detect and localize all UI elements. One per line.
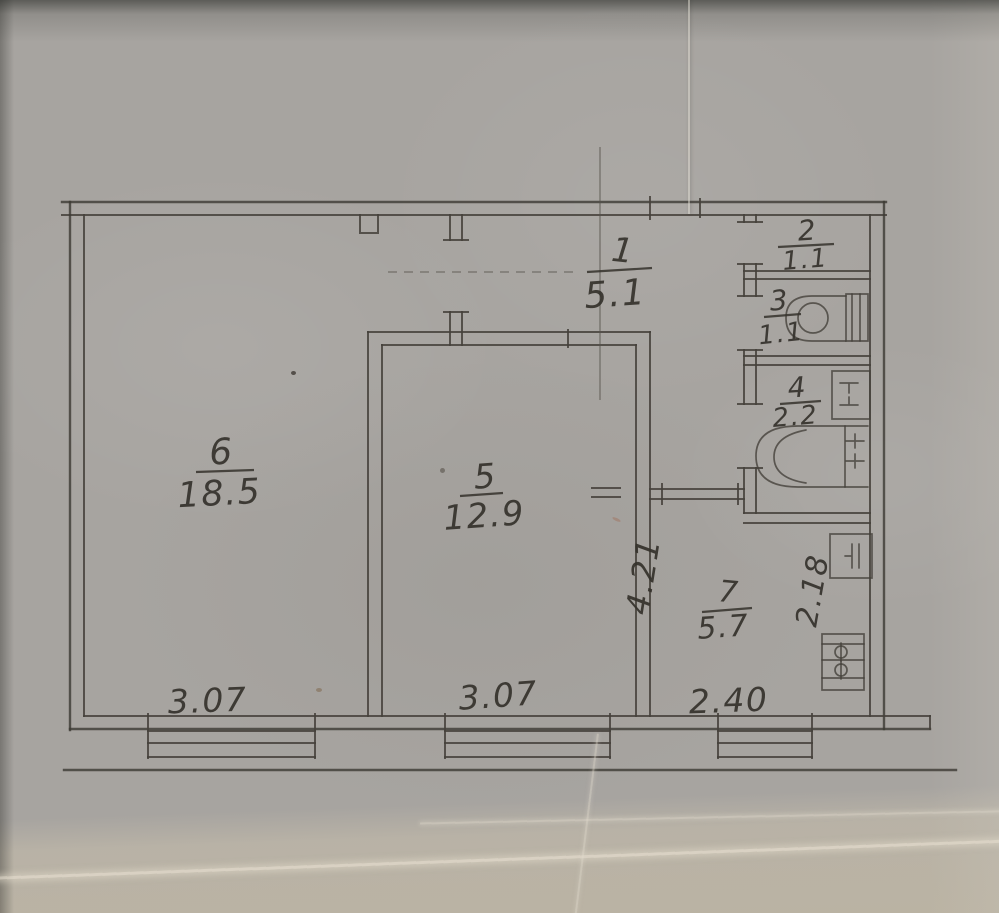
room-5-label: 5 12.9: [442, 456, 526, 539]
dimension-corridor-vertical: 4.21: [618, 535, 668, 617]
dimension-bottom-left: 3.07: [167, 680, 248, 722]
dimension-bottom-right: 2.40: [688, 680, 769, 722]
kitchen-sink-icon: [830, 534, 872, 578]
bathtub-icon: [756, 426, 868, 487]
top-wall-pilaster: [360, 215, 378, 233]
washbasin-icon: [832, 371, 870, 419]
wall-room3-room4: [744, 356, 870, 365]
room-2-area: 1.1: [781, 243, 829, 277]
wall-room6-room5: [368, 332, 382, 716]
room-7-label: 7 5.7: [696, 574, 752, 647]
stove-icon: [822, 634, 864, 690]
room-2-number: 2: [797, 213, 819, 247]
room-1-label: 1 5.1: [583, 230, 652, 317]
room-7-area: 5.7: [696, 608, 751, 647]
scanned-paper-page: 6 18.5 5 12.9 1 5.1 2 1.1 3 1.1 4 2.2: [0, 0, 999, 913]
wall-room5-top: [368, 330, 650, 347]
wall-hall-room6-with-door: [444, 215, 468, 345]
room-1-number: 1: [610, 230, 637, 272]
room-3-label: 3 1.1: [757, 283, 806, 351]
room-3-number: 3: [769, 283, 791, 317]
room-4-area: 2.2: [771, 400, 819, 434]
floor-plan-svg: 6 18.5 5 12.9 1 5.1 2 1.1 3 1.1 4 2.2: [0, 0, 999, 913]
room-3-area: 1.1: [757, 317, 806, 352]
room-5-area: 12.9: [442, 493, 526, 539]
wall-room5-right: [636, 332, 650, 716]
room-2-label: 2 1.1: [778, 213, 834, 277]
window-symbol-room5: [445, 714, 610, 758]
room-4-label: 4 2.2: [771, 370, 821, 434]
window-symbol-kitchen: [718, 714, 812, 758]
room-5-number: 5: [472, 456, 498, 498]
wall-bathroom-bottom: [744, 513, 870, 523]
exterior-walls: [62, 197, 930, 730]
room-6-area: 18.5: [176, 472, 262, 516]
room-6-label: 6 18.5: [176, 431, 262, 516]
room-6-number: 6: [208, 431, 235, 473]
dimension-kitchen-vertical: 2.18: [789, 552, 836, 630]
room-1-area: 5.1: [583, 272, 647, 317]
wall-corridor-kitchen: [592, 484, 744, 504]
room-7-number: 7: [717, 574, 741, 611]
dimension-bottom-middle: 3.07: [457, 673, 539, 717]
room-4-number: 4: [787, 370, 809, 404]
